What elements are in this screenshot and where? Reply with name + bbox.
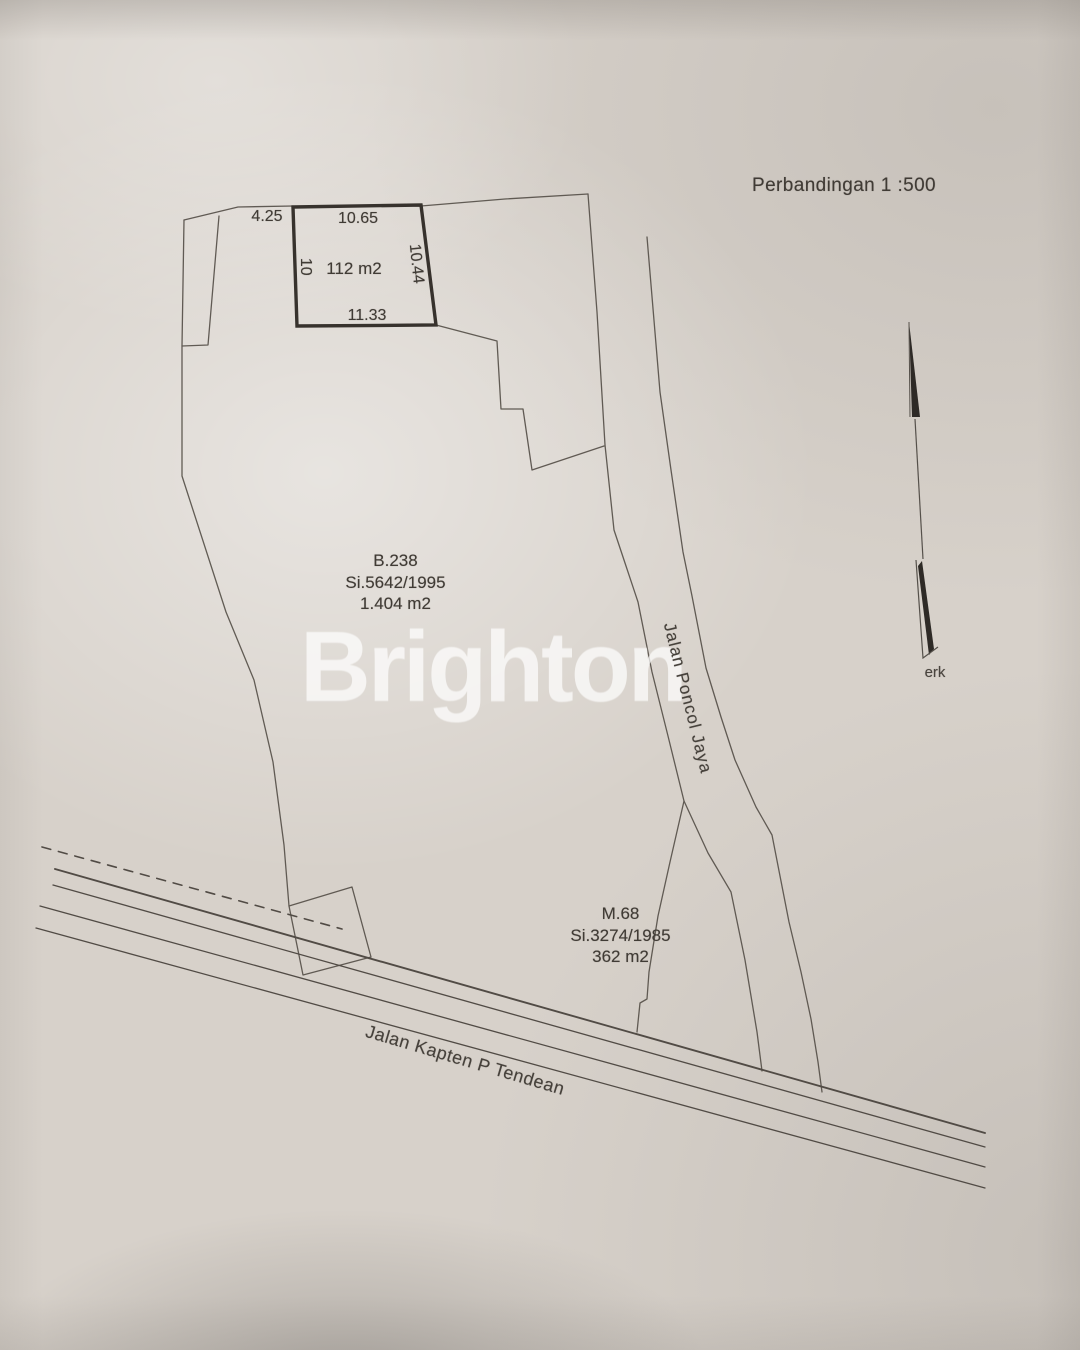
stepped-east-boundary-line: [436, 325, 604, 470]
tendean-road-line-3: [40, 906, 985, 1167]
tendean-road-line-1: [55, 869, 985, 1133]
parcel-b238-certificate: Si.5642/1995: [303, 572, 488, 594]
left-notch-parcel-outline: [182, 216, 219, 346]
tendean-road-lines: [36, 847, 985, 1188]
west-boundary-line: [182, 220, 289, 906]
tendean-road-line-2: [53, 885, 985, 1147]
scanned-site-plan-photo: Brighton Perbandingan 1 :500 4.25 10.65 …: [0, 0, 1080, 1350]
dimension-top: 10.65: [318, 210, 398, 228]
north-arrow-caption: erk: [913, 665, 957, 682]
parcel-m68-id: M.68: [528, 903, 713, 925]
north-arrow-head: [909, 322, 920, 417]
north-arrow-fletch: [918, 561, 934, 655]
scale-label: Perbandingan 1 :500: [752, 176, 982, 197]
dimension-bottom: 11.33: [327, 307, 407, 325]
brighton-watermark: Brighton: [300, 610, 685, 725]
tendean-road-line-4: [36, 928, 985, 1188]
parcel-m68-label: M.68 Si.3274/1985 362 m2: [528, 903, 713, 968]
parcel-m68-certificate: Si.3274/1985: [528, 925, 713, 947]
north-arrow-icon: [909, 322, 938, 658]
highlight-plot-area-label: 112 m2: [314, 260, 394, 279]
dimension-offset-left: 4.25: [237, 208, 297, 226]
north-arrow-shaft: [915, 419, 923, 559]
parcel-b238-area: 1.404 m2: [303, 593, 488, 615]
parcel-b238-label: B.238 Si.5642/1995 1.404 m2: [303, 550, 488, 615]
dimension-left: 10: [296, 250, 314, 284]
parcel-m68-area: 362 m2: [528, 946, 713, 968]
parcel-b238-id: B.238: [303, 550, 488, 572]
small-roadside-parcel-outline: [289, 887, 371, 975]
top-boundary-right-line: [421, 194, 588, 206]
dashed-boundary-line: [42, 847, 342, 929]
